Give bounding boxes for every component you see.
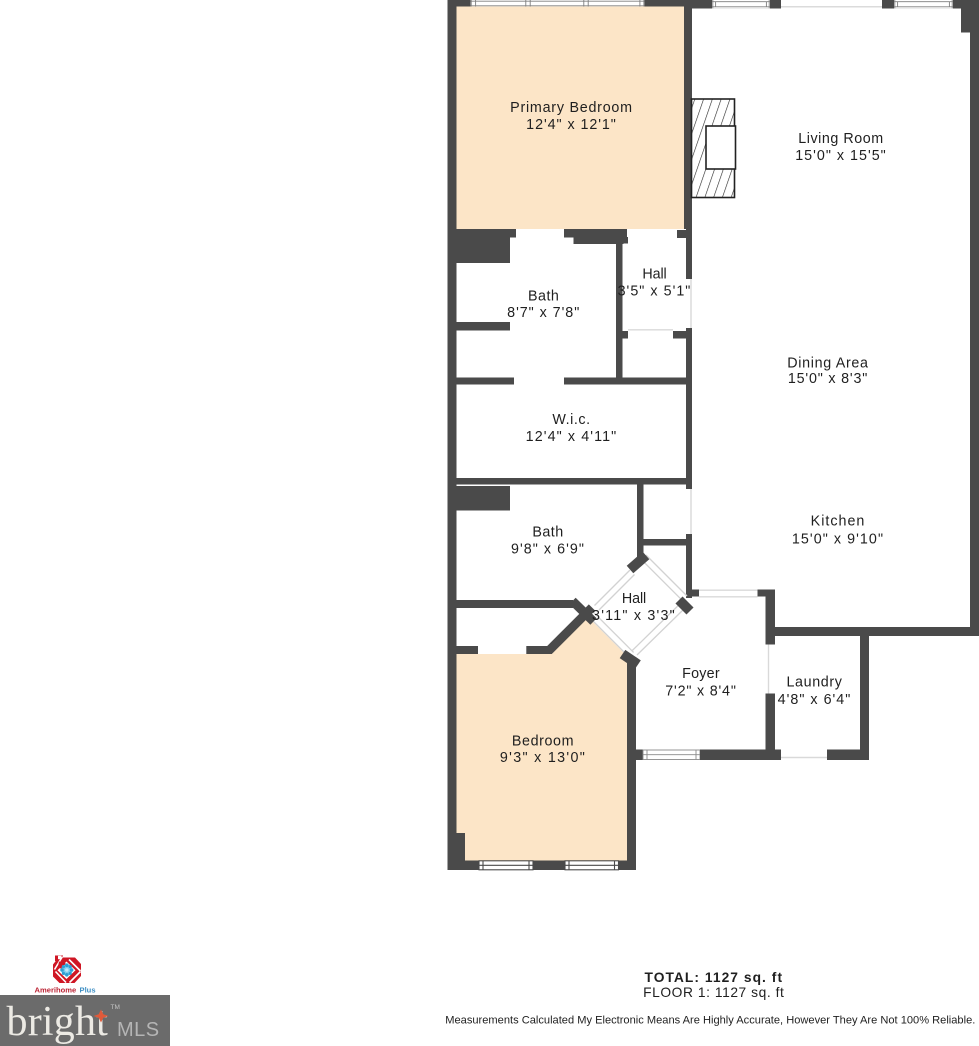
svg-text:12'4" x 4'11": 12'4" x 4'11": [526, 429, 618, 445]
svg-text:Living Room: Living Room: [798, 131, 884, 147]
svg-text:9'8" x 6'9": 9'8" x 6'9": [511, 542, 585, 558]
svg-text:8'7" x 7'8": 8'7" x 7'8": [507, 305, 580, 321]
svg-text:Kitchen: Kitchen: [811, 514, 866, 530]
svg-text:12'4" x 12'1": 12'4" x 12'1": [526, 117, 617, 133]
svg-text:FLOOR 1: 1127 sq. ft: FLOOR 1: 1127 sq. ft: [643, 985, 784, 1000]
svg-text:MLS: MLS: [117, 1019, 160, 1041]
svg-text:15'0" x 15'5": 15'0" x 15'5": [795, 148, 887, 164]
svg-text:Foyer: Foyer: [682, 666, 720, 682]
svg-text:7'2" x 8'4": 7'2" x 8'4": [665, 683, 736, 699]
svg-text:TOTAL: 1127 sq. ft: TOTAL: 1127 sq. ft: [645, 970, 784, 985]
svg-text:bright: bright: [7, 999, 109, 1045]
svg-text:W.i.c.: W.i.c.: [552, 412, 590, 428]
svg-text:Hall: Hall: [622, 591, 646, 607]
svg-text:3'11" x 3'3": 3'11" x 3'3": [592, 608, 676, 624]
svg-text:15'0" x 9'10": 15'0" x 9'10": [792, 532, 884, 548]
svg-text:Laundry: Laundry: [786, 675, 842, 691]
svg-text:Measurements Calculated My Ele: Measurements Calculated My Electronic Me…: [445, 1015, 975, 1027]
svg-text:Bedroom: Bedroom: [512, 734, 574, 750]
svg-text:Hall: Hall: [642, 267, 666, 283]
svg-text:Amerihome: Amerihome: [35, 986, 77, 995]
svg-text:Dining Area: Dining Area: [787, 355, 868, 371]
svg-text:TM: TM: [111, 1004, 120, 1011]
svg-text:Bath: Bath: [532, 525, 563, 541]
svg-text:4'8" x 6'4": 4'8" x 6'4": [778, 692, 852, 708]
svg-text:Primary Bedroom: Primary Bedroom: [510, 100, 633, 116]
svg-text:Bath: Bath: [528, 289, 559, 305]
svg-text:15'0" x 8'3": 15'0" x 8'3": [788, 371, 868, 387]
svg-text:9'3" x 13'0": 9'3" x 13'0": [500, 750, 586, 766]
svg-text:3'5" x 5'1": 3'5" x 5'1": [618, 284, 692, 300]
svg-text:Plus: Plus: [80, 986, 96, 995]
